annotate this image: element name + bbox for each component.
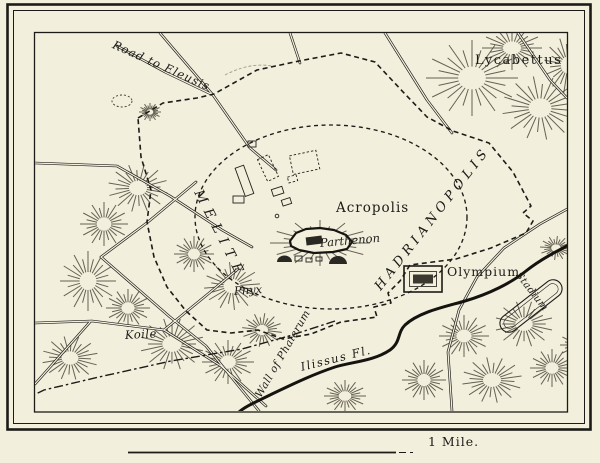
map-frame (8, 5, 591, 430)
dionysus-theatre (329, 256, 347, 264)
label-acropolis: Acropolis (336, 202, 409, 216)
odeon-theatre (277, 256, 292, 263)
ilissus-river (239, 233, 592, 412)
label-koile: Koile (125, 328, 157, 341)
label-olympium: Olympium (447, 266, 520, 279)
olympium-temple (404, 266, 442, 292)
roads (35, 33, 591, 411)
scale-bar-label: 1 Mile. (428, 436, 479, 449)
label-lycabettus: Lycabettus (475, 54, 562, 67)
hill-hachures (35, 26, 600, 412)
map-canvas (0, 0, 600, 463)
map-page: Road to Eleusis Lycabettus MELITE Acropo… (0, 0, 600, 463)
label-pnyx: Pnyx (234, 284, 263, 297)
agora-buildings (233, 141, 320, 218)
